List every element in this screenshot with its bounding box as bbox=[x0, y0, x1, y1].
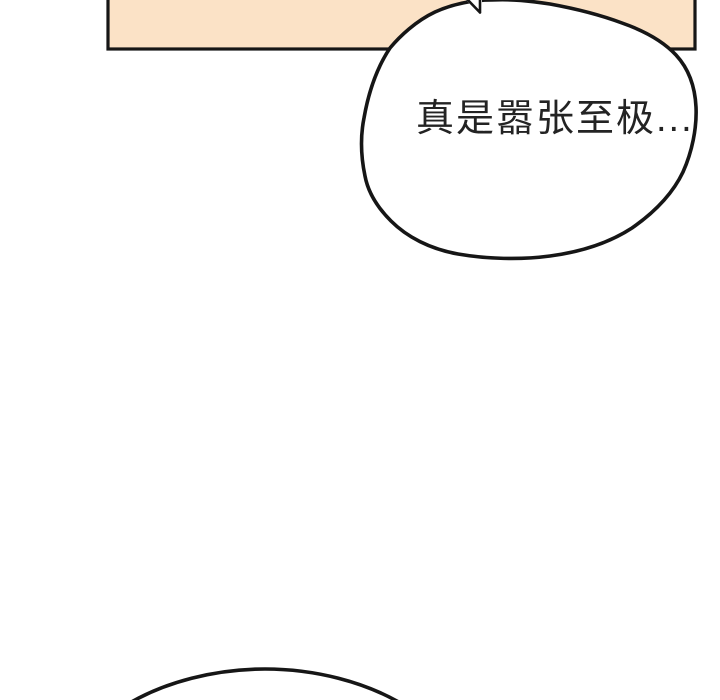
speech-bubble-text: 真是嚣张至极... bbox=[416, 97, 676, 143]
bottom-partial-bubble bbox=[128, 669, 402, 700]
comic-page: 真是嚣张至极... bbox=[0, 0, 720, 700]
